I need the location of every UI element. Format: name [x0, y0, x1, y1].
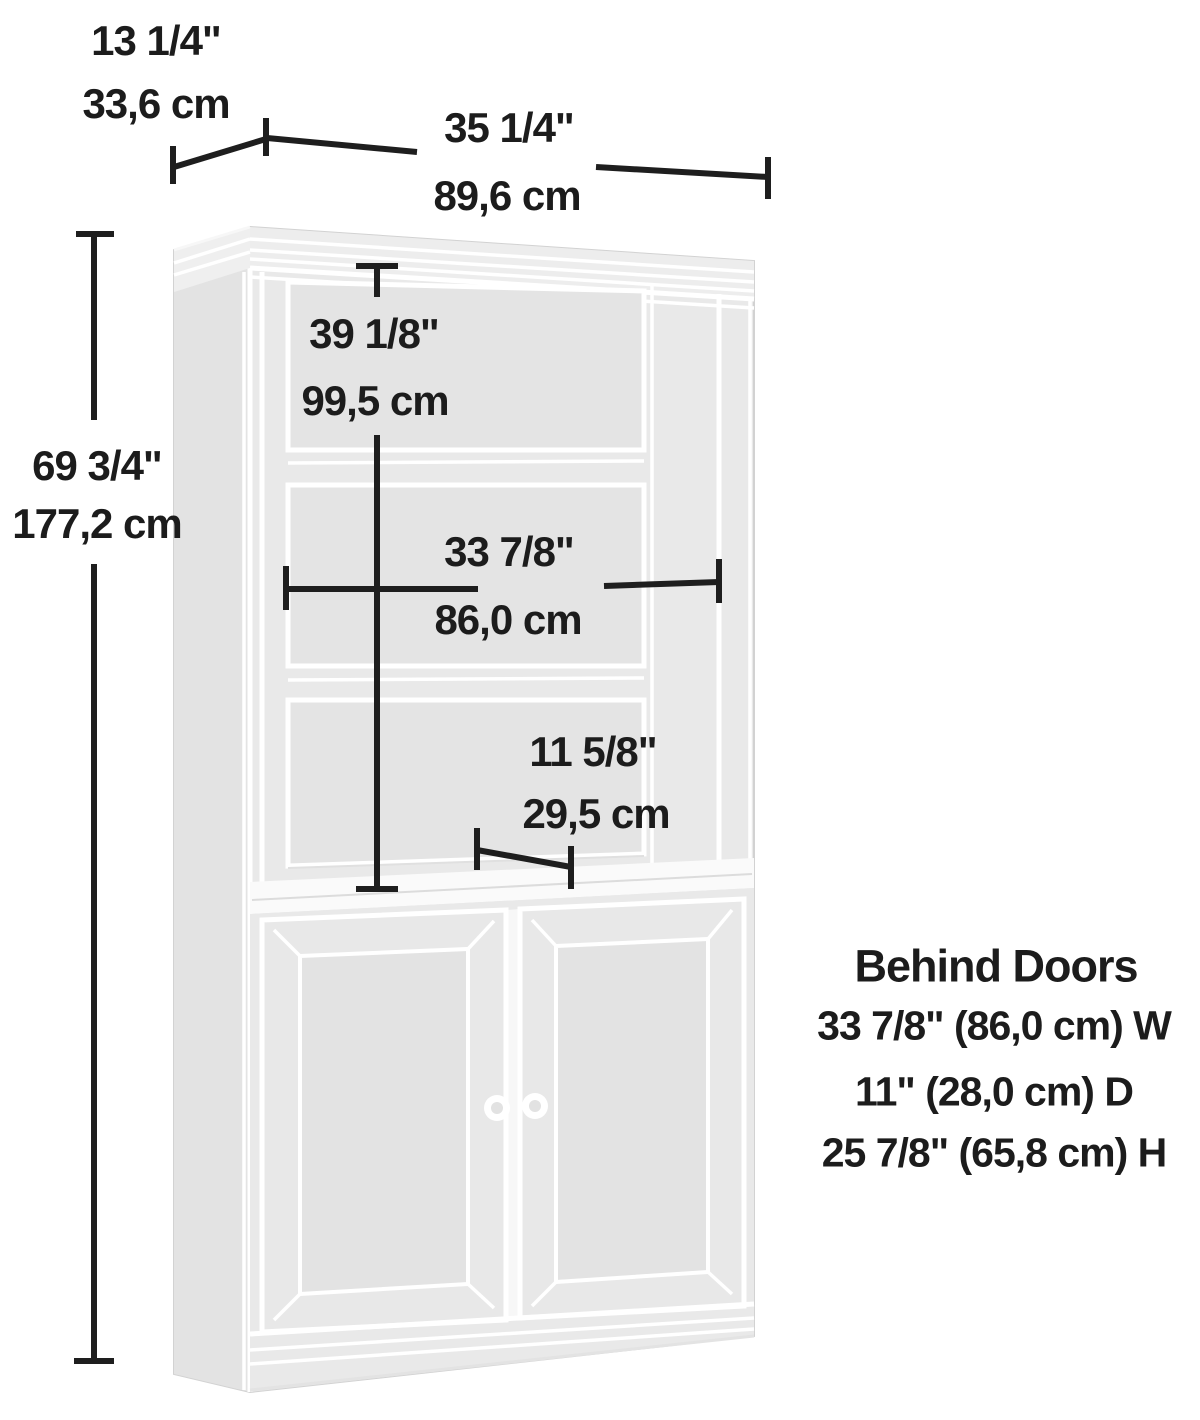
interior-cm-label: 86,0 cm [434, 599, 581, 641]
right-door-handle [522, 1093, 548, 1119]
depth-cm-label: 33,6 cm [82, 83, 229, 125]
right-door [520, 899, 744, 1318]
behind-doors-title: Behind Doors [854, 944, 1137, 989]
left-door-handle [484, 1095, 510, 1121]
shelf-cm-label: 29,5 cm [522, 793, 669, 835]
height-dimension-line [74, 234, 114, 1361]
depth-inches-label: 13 1/4" [91, 20, 221, 62]
behind-doors-width: 33 7/8" (86,0 cm) W [817, 1006, 1171, 1047]
shelf-inches-label: 11 5/8" [529, 731, 656, 773]
cabinet-line-drawing [0, 0, 1200, 1420]
hutch-cm-label: 99,5 cm [301, 380, 448, 422]
lower-cabinet [250, 888, 754, 1392]
furniture-dimension-diagram: 13 1/4" 33,6 cm 35 1/4" 89,6 cm 69 3/4" … [0, 0, 1200, 1420]
depth-dimension-line [173, 118, 266, 184]
cabinet-side-panel [174, 268, 250, 1392]
hutch-inches-label: 39 1/8" [309, 313, 439, 355]
width-cm-label: 89,6 cm [433, 175, 580, 217]
interior-inches-label: 33 7/8" [444, 531, 574, 573]
hutch-opening-bottom [288, 700, 644, 866]
hutch-opening-top [288, 282, 644, 450]
behind-doors-height: 25 7/8" (65,8 cm) H [822, 1133, 1167, 1174]
width-inches-label: 35 1/4" [444, 107, 574, 149]
height-inches-label: 69 3/4" [32, 445, 162, 487]
height-cm-label: 177,2 cm [12, 503, 181, 545]
behind-doors-depth: 11" (28,0 cm) D [855, 1072, 1133, 1113]
left-door [262, 910, 506, 1332]
